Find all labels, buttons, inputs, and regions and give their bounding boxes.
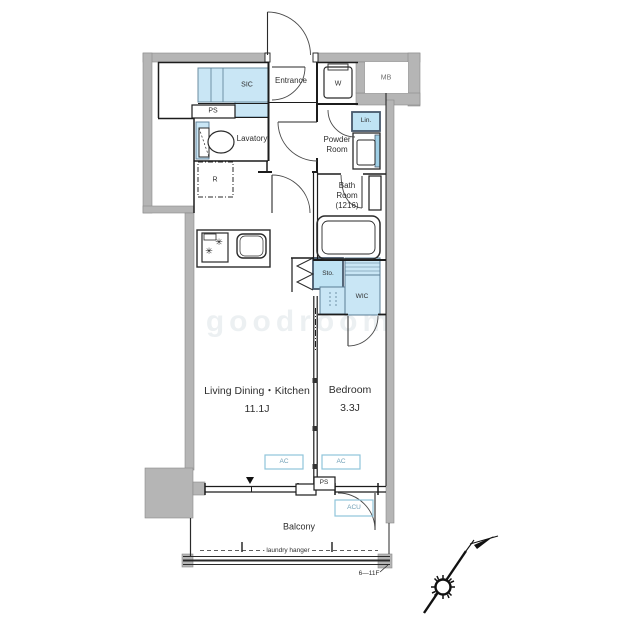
balcony-door	[338, 493, 375, 530]
label-sic: SIC	[241, 82, 253, 89]
label-ldk-name: Living Dining・Kitchen	[204, 386, 310, 397]
label-refrigerator: R	[212, 177, 217, 184]
label-ac-bedroom: AC	[336, 459, 345, 466]
label-laundry-hanger: laundry hanger	[264, 548, 311, 555]
label-washer: W	[335, 81, 342, 88]
label-powder-room-1: Powder	[323, 136, 350, 144]
label-entrance: Entrance	[275, 77, 307, 85]
label-bath-room-1: Bath	[339, 182, 355, 190]
label-lavatory: Lavatory	[237, 135, 268, 143]
floorplan-drawing: ✳ ✳	[0, 0, 640, 640]
label-floor-range: 6—11F	[359, 571, 380, 578]
toilet-icon	[199, 128, 234, 157]
label-balcony: Balcony	[283, 523, 315, 532]
label-ldk-size: 11.1J	[245, 404, 270, 415]
svg-text:✳: ✳	[205, 246, 213, 256]
label-ps-bottom: PS	[320, 480, 329, 487]
label-linen: Lin.	[361, 118, 371, 125]
washer-nook-door	[328, 110, 355, 137]
label-bedroom-name: Bedroom	[329, 385, 372, 396]
ldk-door	[272, 175, 310, 213]
folding-door	[297, 258, 313, 290]
compass-north-icon	[424, 536, 498, 613]
label-powder-room-2: Room	[326, 146, 347, 154]
label-meter-box: MB	[381, 75, 392, 82]
floorplan-canvas: goodroom	[0, 0, 640, 640]
label-bath-room-3: (1216)	[335, 202, 358, 210]
label-bedroom-size: 3.3J	[340, 403, 360, 414]
bathtub-icon	[317, 216, 380, 259]
label-ps-top: PS	[208, 108, 217, 115]
label-wic: WIC	[356, 294, 369, 301]
label-storage: Sto.	[322, 271, 334, 278]
label-bath-room-2: Room	[336, 192, 357, 200]
label-acu: ACU	[347, 505, 361, 512]
sic-area	[198, 68, 268, 102]
wic-area	[345, 258, 380, 315]
label-ac-ldk: AC	[279, 459, 288, 466]
entrance-door	[265, 12, 318, 62]
wic-door	[348, 316, 378, 346]
svg-text:✳: ✳	[215, 237, 223, 247]
entry-direction-marker	[246, 477, 254, 484]
powder-room-door	[278, 122, 317, 161]
kitchen-counter: ✳ ✳	[197, 230, 270, 267]
